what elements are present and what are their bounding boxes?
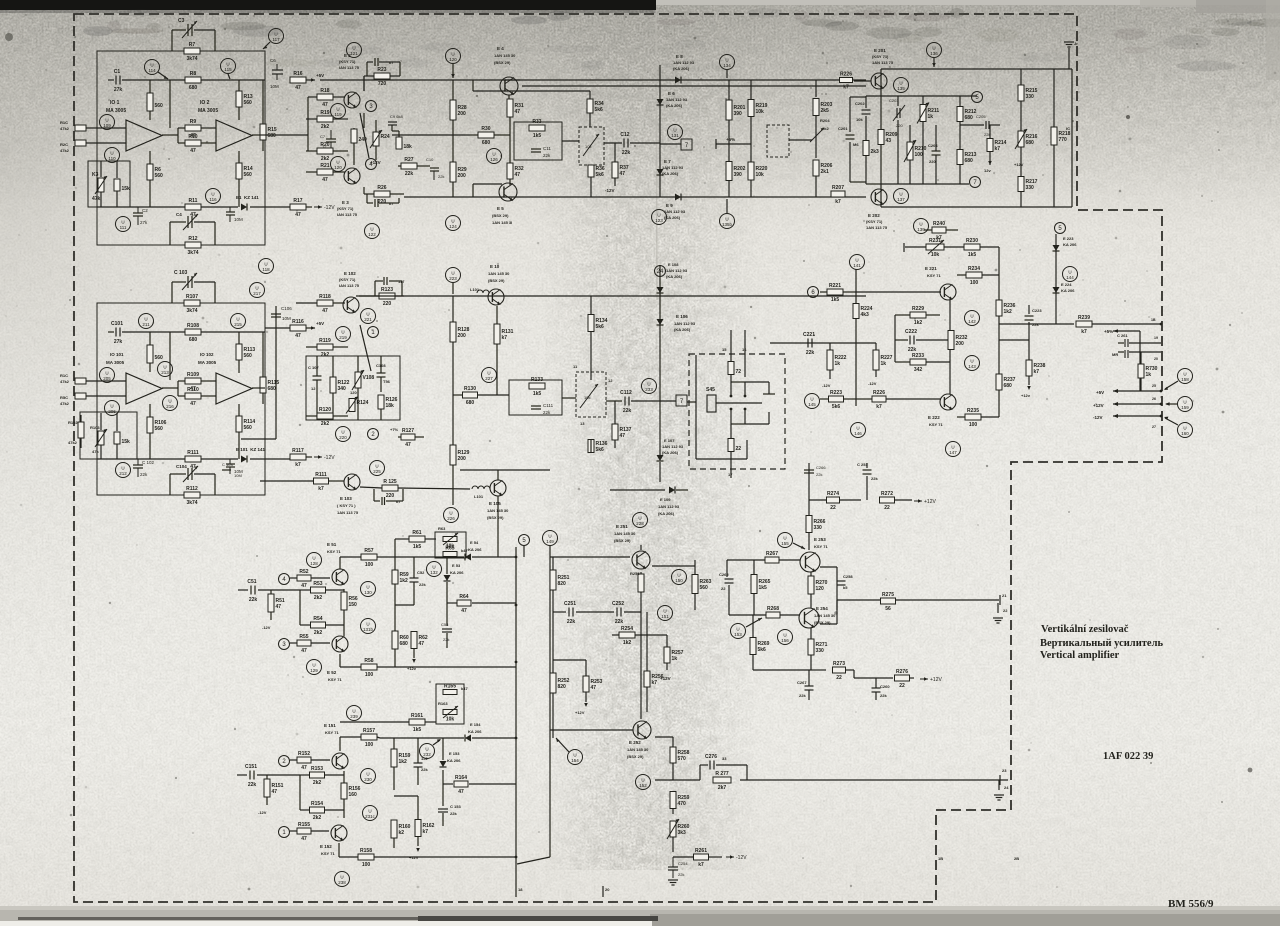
svg-text:E 3: E 3 (342, 200, 349, 205)
svg-text:U: U (312, 556, 315, 561)
svg-text:MA 3005: MA 3005 (198, 360, 217, 365)
svg-text:+12v: +12v (1021, 393, 1031, 398)
svg-text:U: U (970, 359, 973, 364)
svg-text:E 251: E 251 (616, 524, 628, 529)
svg-text:U: U (163, 365, 166, 370)
svg-text:128: 128 (310, 561, 318, 566)
svg-text:22k: 22k (622, 150, 631, 156)
svg-text:110: 110 (108, 156, 116, 161)
svg-text:E 101 KZ 141: E 101 KZ 141 (236, 447, 266, 452)
svg-text:131: 131 (671, 133, 679, 138)
svg-text:2k2: 2k2 (822, 126, 829, 131)
svg-text:215: 215 (234, 322, 242, 327)
svg-text:R117: R117 (292, 448, 304, 454)
svg-text:R239: R239 (1078, 315, 1090, 321)
svg-text:R157: R157 (363, 728, 375, 734)
svg-text:5k6: 5k6 (595, 107, 604, 113)
svg-text:U: U (783, 633, 786, 638)
svg-text:C151: C151 (245, 764, 257, 770)
svg-text:22k: 22k (443, 637, 449, 642)
svg-text:k7: k7 (843, 85, 849, 91)
svg-text:22: 22 (884, 505, 890, 511)
svg-text:KA 206: KA 206 (1063, 242, 1077, 247)
svg-text:k7: k7 (318, 486, 324, 492)
svg-text:U: U (366, 772, 369, 777)
svg-text:U: U (663, 609, 666, 614)
svg-text:2k2: 2k2 (321, 156, 330, 162)
svg-text:U: U (336, 107, 339, 112)
svg-text:2k2: 2k2 (321, 124, 330, 130)
svg-text:R107: R107 (186, 294, 198, 300)
svg-text:5k6: 5k6 (596, 447, 605, 453)
svg-text:238: 238 (338, 880, 346, 885)
svg-text:C 261: C 261 (1117, 333, 1128, 338)
svg-text:228: 228 (636, 521, 644, 526)
svg-text:U: U (121, 220, 124, 225)
svg-text:4k3: 4k3 (861, 312, 870, 318)
svg-text:U: U (736, 627, 739, 632)
svg-text:12: 12 (608, 378, 613, 383)
svg-text:C201: C201 (838, 126, 848, 131)
svg-text:+5%: +5% (726, 137, 735, 142)
svg-text:1B: 1B (938, 856, 943, 861)
svg-text:205: 205 (103, 376, 111, 381)
svg-text:47: 47 (620, 433, 626, 439)
svg-text:E 7: E 7 (664, 159, 671, 164)
svg-text:R207: R207 (832, 185, 844, 191)
svg-text:143: 143 (968, 364, 976, 369)
svg-text:U: U (366, 585, 369, 590)
svg-text:R127: R127 (402, 428, 414, 434)
svg-text:E 201: E 201 (874, 48, 886, 53)
svg-text:(BSX 29): (BSX 29) (614, 538, 631, 543)
svg-text:R52: R52 (299, 569, 308, 575)
svg-text:C6: C6 (270, 58, 276, 63)
svg-text:22k: 22k (799, 693, 806, 698)
svg-text:k47: k47 (461, 548, 468, 553)
svg-text:144: 144 (1066, 275, 1074, 280)
svg-text:330: 330 (1026, 185, 1035, 191)
svg-text:47: 47 (295, 333, 301, 339)
svg-text:119: 119 (334, 112, 342, 117)
svg-text:47: 47 (620, 171, 626, 177)
svg-text:IO 1: IO 1 (110, 100, 120, 106)
svg-text:U: U (340, 875, 343, 880)
svg-text:R152: R152 (298, 751, 310, 757)
svg-text:3k74: 3k74 (186, 56, 197, 62)
svg-text:R164: R164 (455, 775, 467, 781)
svg-text:C 103: C 103 (174, 270, 188, 276)
svg-text:1k5: 1k5 (968, 252, 977, 258)
svg-text:KSY 71: KSY 71 (328, 677, 342, 682)
svg-text:47: 47 (295, 85, 301, 91)
svg-text:BM 556/9: BM 556/9 (1168, 898, 1214, 910)
svg-text:R123: R123 (381, 287, 393, 293)
svg-text:233: 233 (645, 387, 653, 392)
svg-text:E 154: E 154 (470, 722, 481, 727)
svg-text:Vertical amplifier: Vertical amplifier (1040, 650, 1120, 661)
svg-text:R18: R18 (320, 88, 329, 94)
svg-text:k7: k7 (995, 146, 1001, 152)
svg-text:3k3: 3k3 (678, 830, 687, 836)
svg-text:U: U (451, 219, 454, 224)
svg-text:C205: C205 (976, 114, 986, 119)
svg-text:200: 200 (458, 173, 467, 179)
svg-text:22k: 22k (816, 472, 822, 477)
svg-text:47: 47 (301, 836, 307, 842)
svg-text:27k: 27k (114, 87, 123, 93)
svg-text:U: U (236, 317, 239, 322)
svg-text:10M: 10M (234, 473, 242, 478)
svg-text:C2: C2 (142, 208, 148, 213)
svg-text:223: 223 (449, 276, 457, 281)
svg-text:(KA 206): (KA 206) (662, 171, 679, 176)
svg-text:47k2: 47k2 (60, 379, 70, 384)
svg-text:k7: k7 (423, 829, 429, 835)
svg-text:C 153: C 153 (450, 804, 461, 809)
svg-text:+12V: +12V (370, 160, 381, 165)
svg-text:680: 680 (965, 158, 974, 164)
svg-text:R119: R119 (319, 338, 331, 344)
svg-text:227: 227 (485, 376, 493, 381)
svg-text:680: 680 (189, 85, 198, 91)
svg-text:+12V: +12V (575, 710, 585, 715)
svg-text:(KA 206): (KA 206) (658, 511, 675, 516)
svg-text:+12V: +12V (1093, 403, 1104, 408)
svg-text:R272: R272 (881, 491, 893, 497)
svg-text:200: 200 (458, 111, 467, 117)
svg-text:2k2: 2k2 (314, 595, 323, 601)
svg-text:R235: R235 (967, 408, 979, 414)
svg-text:(BSX 29): (BSX 29) (487, 515, 504, 520)
svg-text:U: U (121, 466, 124, 471)
svg-text:E 151: E 151 (324, 723, 336, 728)
svg-text:18k: 18k (386, 403, 395, 409)
svg-text:-12V: -12V (262, 625, 271, 630)
svg-text:22k: 22k (405, 171, 414, 177)
svg-text:18k: 18k (404, 144, 413, 150)
svg-text:Jr: Jr (1074, 41, 1078, 46)
svg-text:1k: 1k (672, 656, 678, 662)
svg-text:L101: L101 (474, 494, 484, 499)
svg-text:22k: 22k (880, 693, 887, 698)
svg-text:225: 225 (373, 469, 381, 474)
svg-text:720: 720 (378, 81, 387, 87)
svg-text:R118: R118 (319, 294, 331, 300)
svg-text:R108: R108 (187, 323, 199, 329)
svg-text:U: U (366, 622, 369, 627)
svg-text:5k6: 5k6 (596, 324, 605, 330)
svg-text:390: 390 (734, 172, 743, 178)
svg-text:R268: R268 (767, 606, 779, 612)
svg-text:10k: 10k (756, 172, 765, 178)
svg-text:U: U (899, 81, 902, 86)
svg-text:U: U (951, 445, 954, 450)
svg-text:k7: k7 (698, 862, 704, 868)
svg-text:230: 230 (364, 777, 372, 782)
svg-text:C260: C260 (880, 684, 890, 689)
svg-text:R165: R165 (444, 684, 456, 690)
svg-text:1AN 112 93: 1AN 112 93 (666, 97, 688, 102)
svg-text:C11: C11 (543, 146, 551, 151)
svg-text:C101: C101 (111, 321, 123, 327)
svg-text:+5%: +5% (1104, 329, 1113, 334)
svg-text:3k74: 3k74 (187, 250, 198, 256)
svg-text:K3: K3 (92, 172, 99, 178)
svg-text:KA 206: KA 206 (468, 729, 482, 734)
svg-text:22k: 22k (623, 408, 632, 414)
svg-text:27k: 27k (114, 339, 123, 345)
svg-text:23: 23 (1002, 768, 1007, 773)
svg-text:k7: k7 (295, 462, 301, 468)
svg-text:47: 47 (322, 177, 328, 183)
svg-text:R163: R163 (438, 701, 448, 706)
svg-text:R8: R8 (190, 71, 197, 77)
svg-text:R11: R11 (189, 198, 198, 204)
svg-text:100: 100 (365, 672, 374, 678)
svg-text:3k74: 3k74 (186, 500, 197, 506)
svg-text:R64: R64 (459, 594, 468, 600)
svg-text:U: U (370, 227, 373, 232)
svg-text:124: 124 (449, 224, 457, 229)
svg-text:5k6: 5k6 (832, 404, 841, 410)
svg-text:1AN 145 30: 1AN 145 30 (488, 271, 510, 276)
svg-text:R274: R274 (827, 491, 839, 497)
svg-text:1k5: 1k5 (413, 727, 422, 733)
svg-text:KSY 71: KSY 71 (321, 851, 335, 856)
svg-text:330: 330 (1026, 94, 1035, 100)
svg-text:R109: R109 (187, 372, 199, 378)
svg-text:116: 116 (209, 197, 217, 202)
svg-text:R273: R273 (833, 661, 845, 667)
svg-text:213: 213 (161, 370, 169, 375)
svg-text:E 223: E 223 (1063, 236, 1074, 241)
svg-text:U: U (368, 809, 371, 814)
svg-text:220: 220 (896, 123, 903, 128)
svg-text:47: 47 (190, 401, 196, 407)
svg-text:1AF 022 39: 1AF 022 39 (1103, 751, 1153, 762)
svg-text:680: 680 (1026, 140, 1035, 146)
svg-text:R102: R102 (68, 420, 78, 425)
svg-text:15k: 15k (122, 439, 131, 445)
svg-text:10M: 10M (270, 84, 279, 89)
svg-text:126: 126 (490, 157, 498, 162)
svg-text:10k: 10k (446, 717, 455, 723)
svg-text:MA 3005: MA 3005 (106, 108, 126, 114)
svg-text:IAN 113 75: IAN 113 75 (339, 65, 360, 70)
svg-text:47k: 47k (92, 196, 101, 202)
svg-text:1AN 112 93: 1AN 112 93 (664, 209, 686, 214)
svg-text:R133: R133 (531, 377, 543, 383)
svg-text:E 102: E 102 (344, 271, 356, 276)
svg-text:115: 115 (224, 67, 232, 72)
svg-text:R112: R112 (186, 486, 198, 492)
svg-text:IAN 113 75: IAN 113 75 (337, 212, 358, 217)
svg-text:154: 154 (571, 758, 579, 763)
svg-text:560: 560 (700, 585, 709, 591)
svg-text:117: 117 (272, 37, 280, 42)
svg-text:R23: R23 (377, 67, 386, 73)
svg-text:C 107: C 107 (308, 365, 319, 370)
svg-text:U: U (352, 709, 355, 714)
svg-text:Вертикальный усилитель: Вертикальный усилитель (1040, 638, 1163, 649)
svg-text:C223: C223 (1032, 308, 1042, 313)
svg-text:C51: C51 (247, 579, 256, 585)
svg-text:111: 111 (120, 225, 127, 230)
svg-text:MR: MR (1112, 352, 1118, 357)
svg-text:C254: C254 (678, 861, 688, 866)
svg-text:680: 680 (965, 115, 974, 121)
svg-text:22k: 22k (419, 582, 426, 587)
svg-text:R110: R110 (187, 387, 199, 393)
svg-text:-12V: -12V (822, 383, 831, 388)
svg-text:U: U (425, 747, 428, 752)
svg-text:E 53: E 53 (452, 563, 461, 568)
svg-text:U: U (375, 464, 378, 469)
svg-text:R7: R7 (189, 42, 196, 48)
svg-text:R111: R111 (187, 450, 199, 456)
svg-text:15k: 15k (122, 186, 131, 192)
svg-text:1AN 145 30: 1AN 145 30 (814, 613, 836, 618)
svg-text:1k5: 1k5 (533, 133, 542, 139)
svg-text:k47: k47 (461, 686, 468, 691)
svg-text:R255: R255 (630, 571, 640, 576)
svg-text:26: 26 (1152, 397, 1156, 401)
svg-text:E 106: E 106 (676, 314, 688, 319)
svg-text:12: 12 (311, 386, 316, 391)
svg-text:R26: R26 (377, 185, 386, 191)
svg-text:KA 206: KA 206 (468, 547, 482, 552)
svg-text:2k2: 2k2 (313, 780, 322, 786)
svg-text:U: U (105, 371, 108, 376)
svg-text:U: U (899, 192, 902, 197)
svg-text:560: 560 (155, 426, 164, 432)
svg-text:330: 330 (816, 648, 825, 654)
svg-text:100: 100 (969, 422, 978, 428)
svg-text:153: 153 (734, 632, 742, 637)
svg-text:C106: C106 (281, 306, 292, 311)
svg-text:S45: S45 (706, 387, 715, 393)
svg-text:22: 22 (1003, 608, 1008, 613)
svg-text:100: 100 (362, 862, 371, 868)
svg-text:E 224: E 224 (1061, 282, 1072, 287)
svg-text:20: 20 (605, 887, 610, 892)
svg-text:U: U (970, 314, 973, 319)
svg-text:680: 680 (189, 337, 198, 343)
svg-text:+12V: +12V (409, 855, 419, 860)
svg-text:2k2: 2k2 (313, 815, 322, 821)
svg-text:E 202: E 202 (868, 213, 880, 218)
svg-text:C53: C53 (441, 622, 449, 627)
svg-text:2k2: 2k2 (321, 352, 330, 358)
svg-text:E 252: E 252 (629, 740, 641, 745)
svg-text:150: 150 (349, 602, 358, 608)
svg-text:570: 570 (678, 756, 687, 762)
svg-text:470: 470 (678, 801, 687, 807)
svg-text:R63: R63 (438, 526, 446, 531)
svg-text:Vertikální zesilovač: Vertikální zesilovač (1041, 624, 1129, 635)
svg-text:680: 680 (268, 386, 277, 392)
svg-text:-12V: -12V (736, 855, 747, 861)
svg-text:C3: C3 (178, 18, 185, 24)
svg-text:114: 114 (148, 68, 156, 73)
svg-text:-12V: -12V (605, 188, 615, 193)
svg-text:R221: R221 (829, 283, 841, 289)
svg-text:200: 200 (956, 341, 965, 347)
svg-text:U: U (110, 151, 113, 156)
svg-text:121: 121 (350, 51, 358, 56)
svg-text:135: 135 (897, 86, 905, 91)
svg-text:47: 47 (419, 641, 425, 647)
svg-text:142: 142 (968, 319, 976, 324)
svg-text:KSY 71: KSY 71 (927, 273, 941, 278)
svg-text:200: 200 (458, 333, 467, 339)
svg-text:47: 47 (301, 583, 307, 589)
svg-text:E 109: E 109 (660, 497, 671, 502)
svg-text:C221: C221 (803, 332, 815, 338)
svg-text:U: U (573, 753, 576, 758)
svg-text:2k2: 2k2 (314, 630, 323, 636)
svg-text:2k7: 2k7 (718, 785, 727, 791)
svg-text:47k2: 47k2 (68, 440, 78, 445)
svg-text:U: U (487, 371, 490, 376)
svg-text:C52: C52 (417, 570, 425, 575)
svg-text:E 103: E 103 (340, 496, 352, 501)
svg-text:342: 342 (914, 367, 923, 373)
svg-text:E 107: E 107 (664, 438, 675, 443)
svg-text:47k2: 47k2 (60, 148, 70, 153)
svg-text:E 4: E 4 (497, 46, 504, 51)
svg-text:47: 47 (301, 648, 307, 654)
svg-text:(KA 206): (KA 206) (674, 327, 691, 332)
svg-text:22: 22 (899, 683, 905, 689)
svg-text:(KA 206): (KA 206) (673, 66, 690, 71)
svg-text:R1C: R1C (60, 120, 68, 125)
svg-text:U: U (1183, 372, 1186, 377)
svg-text:R130: R130 (464, 386, 476, 392)
svg-text:R267: R267 (766, 551, 778, 557)
svg-text:U: U (919, 222, 922, 227)
svg-text:141: 141 (853, 263, 861, 268)
svg-text:15: 15 (722, 347, 727, 352)
svg-text:k7: k7 (502, 335, 508, 341)
svg-text:U: U (341, 330, 344, 335)
svg-text:KSY 71: KSY 71 (929, 422, 943, 427)
svg-text:22k: 22k (438, 174, 444, 179)
svg-text:560: 560 (155, 173, 164, 179)
svg-text:1AN 112 93: 1AN 112 93 (662, 165, 684, 170)
svg-text:R 277: R 277 (715, 771, 729, 777)
svg-text:100: 100 (365, 562, 374, 568)
svg-text:U: U (856, 426, 859, 431)
svg-text:-12V: -12V (258, 810, 267, 815)
svg-text:R54: R54 (313, 616, 322, 622)
svg-text:1AN 112 93: 1AN 112 93 (658, 504, 680, 509)
svg-text:(BSX 29): (BSX 29) (494, 60, 511, 65)
svg-text:-12V: -12V (1093, 415, 1103, 420)
svg-text:R 125: R 125 (383, 479, 397, 485)
svg-text:(KSY 71): (KSY 71) (339, 277, 356, 282)
svg-text:27k: 27k (140, 220, 148, 225)
svg-text:C12: C12 (620, 132, 629, 138)
svg-text:KSY 71: KSY 71 (814, 544, 828, 549)
svg-text:239: 239 (350, 714, 358, 719)
svg-text:C1: C1 (114, 69, 121, 75)
svg-text:E 10: E 10 (490, 264, 500, 269)
svg-text:R1C: R1C (60, 373, 68, 378)
svg-text:118: 118 (262, 267, 270, 272)
svg-text:1k2: 1k2 (400, 578, 409, 584)
